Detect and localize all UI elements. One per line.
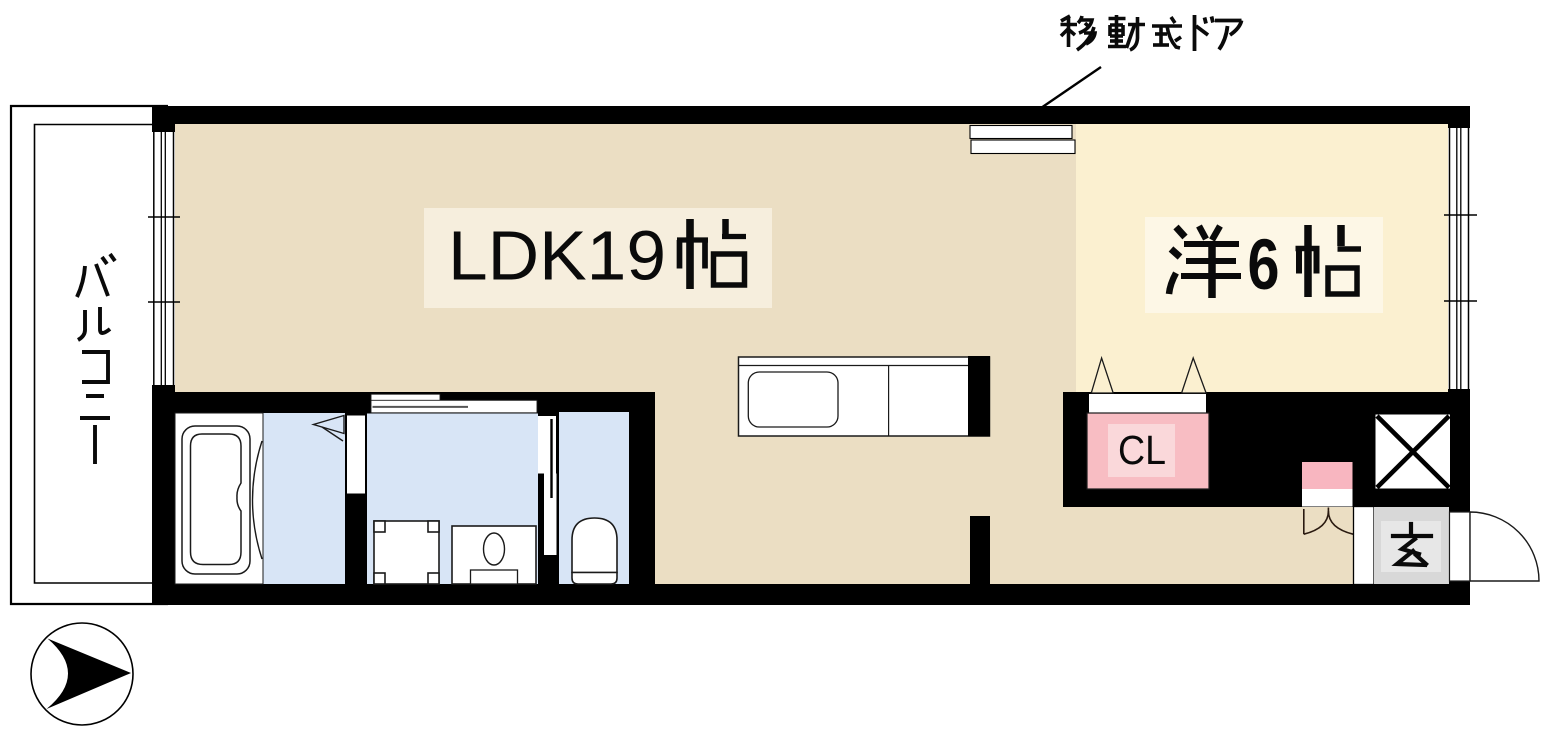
svg-text:LDK19: LDK19	[448, 217, 666, 295]
svg-text:6: 6	[1248, 226, 1280, 305]
svg-text:CL: CL	[1118, 427, 1166, 473]
